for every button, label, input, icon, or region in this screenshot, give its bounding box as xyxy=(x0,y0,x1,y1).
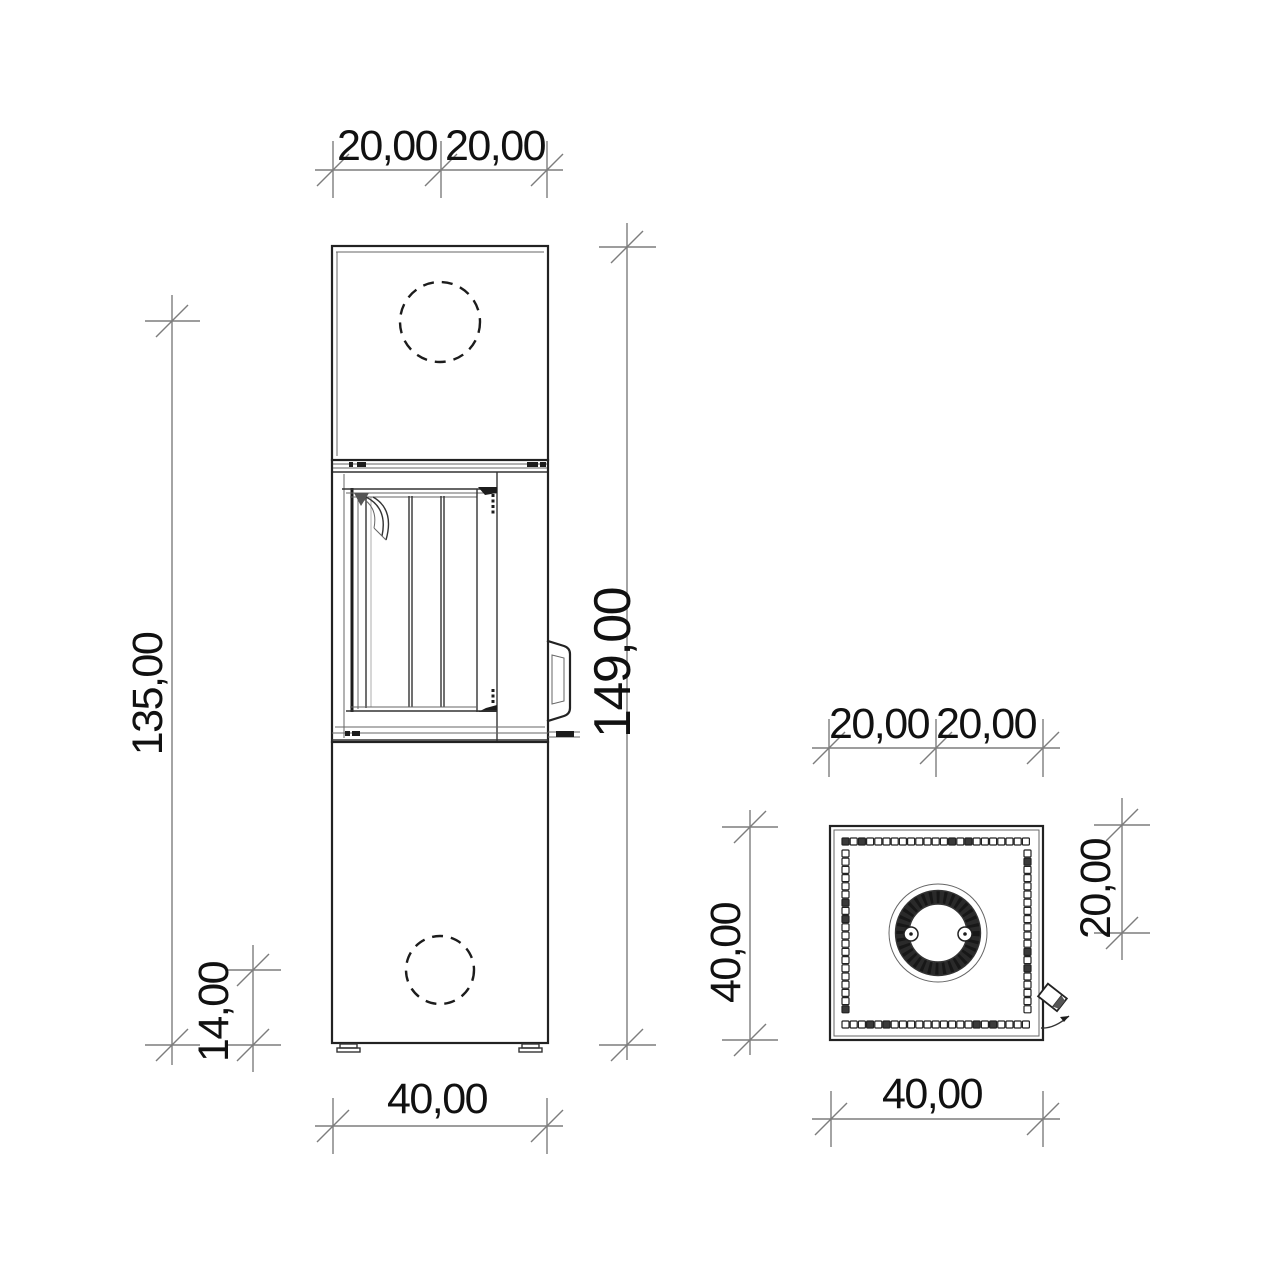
front-dim-top: 20,00 20,00 xyxy=(315,122,563,198)
front-dim-flue-height: 135,00 xyxy=(124,295,200,1065)
plan-body xyxy=(830,826,1043,1040)
front-top-box xyxy=(332,246,548,460)
air-intake-dashed-circle xyxy=(406,936,474,1004)
front-dim-width: 40,00 xyxy=(315,1075,563,1154)
dim-label-front-top-left: 20,00 xyxy=(337,122,438,170)
dim-label-front-top-right: 20,00 xyxy=(445,122,546,170)
plan-dim-flue-offset: 20,00 xyxy=(1072,798,1150,960)
dim-label-flue-height: 135,00 xyxy=(124,632,172,755)
front-firebox-section xyxy=(332,460,580,742)
front-top-divider-band xyxy=(332,462,548,472)
dim-label-plan-depth: 40,00 xyxy=(702,902,750,1003)
dim-label-total-height: 149,00 xyxy=(584,588,642,738)
front-elevation-view: 20,00 20,00 135,00 14,00 149,00 xyxy=(124,122,656,1154)
dim-label-plan-flue-offset: 20,00 xyxy=(1072,838,1120,939)
dim-label-plan-top-left: 20,00 xyxy=(829,700,930,748)
front-dim-total-height: 149,00 xyxy=(584,223,656,1061)
dim-label-plan-top-right: 20,00 xyxy=(936,700,1037,748)
technical-drawing-canvas: 20,00 20,00 135,00 14,00 149,00 xyxy=(0,0,1280,1280)
hinge-hatch-top xyxy=(478,487,497,514)
dim-label-intake-height: 14,00 xyxy=(190,961,238,1062)
front-dim-intake-height: 14,00 xyxy=(190,945,281,1072)
front-bottom-box xyxy=(332,742,548,1043)
stove-dimension-drawing: 20,00 20,00 135,00 14,00 149,00 xyxy=(0,0,1280,1280)
flue-outlet-dashed-circle xyxy=(400,282,480,362)
plan-perforation-ring xyxy=(842,838,1031,1028)
dim-label-front-width: 40,00 xyxy=(387,1075,488,1123)
plan-dim-depth: 40,00 xyxy=(702,810,778,1056)
plan-dim-width: 40,00 xyxy=(812,1070,1060,1147)
dim-label-plan-width: 40,00 xyxy=(882,1070,983,1118)
door-handle xyxy=(548,641,570,721)
stove-feet xyxy=(337,1044,542,1052)
plan-dim-top: 20,00 20,00 xyxy=(812,700,1060,777)
plan-flue-collar xyxy=(889,884,987,982)
hinge-hatch-bottom xyxy=(478,689,497,712)
top-plan-view: 20,00 20,00 40,00 20,00 40,00 xyxy=(702,700,1150,1147)
